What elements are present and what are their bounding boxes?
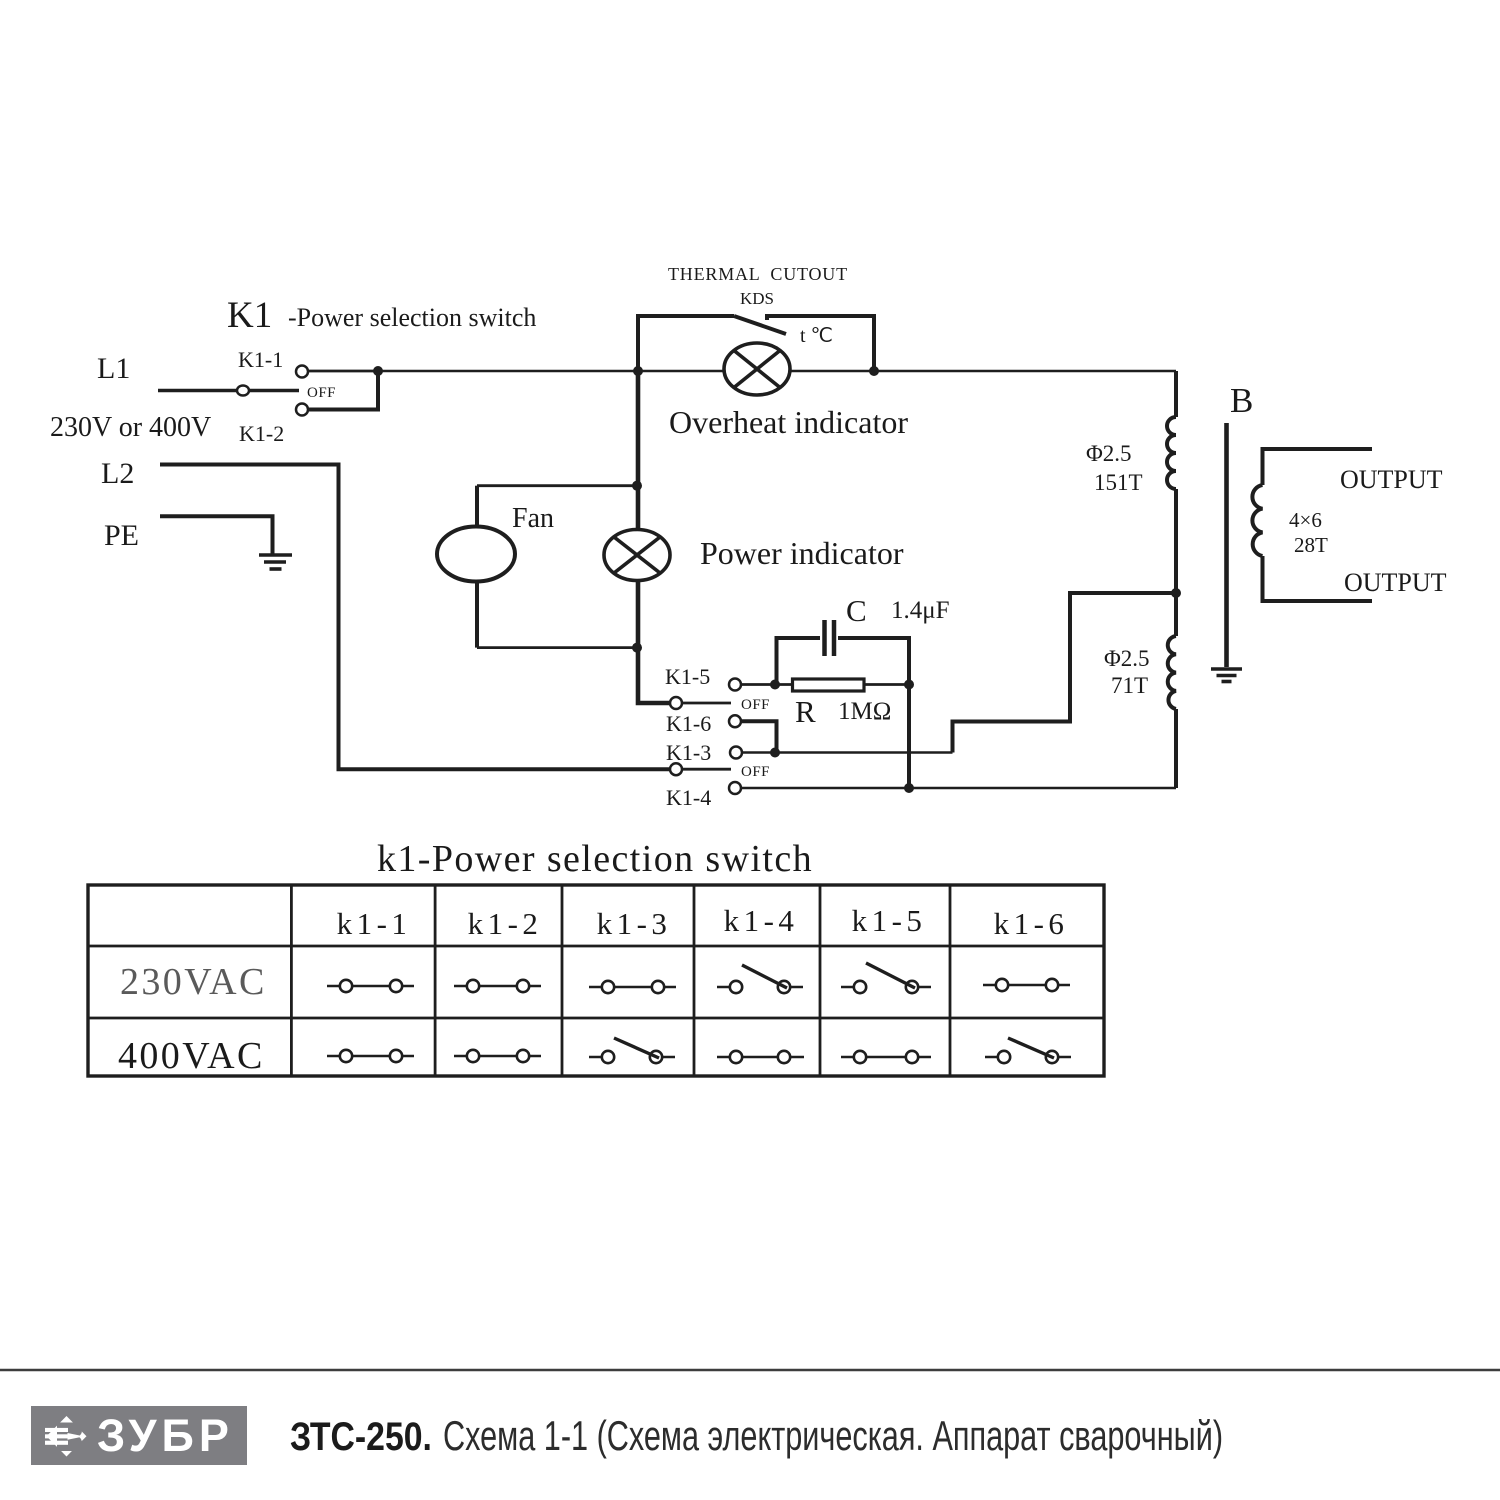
- svg-text:OFF: OFF: [307, 385, 336, 401]
- svg-text:230VAC: 230VAC: [120, 961, 267, 1003]
- svg-text:k1-4: k1-4: [724, 903, 799, 938]
- svg-text:Схема 1-1 (Схема электрическая: Схема 1-1 (Схема электрическая. Аппарат …: [443, 1412, 1223, 1459]
- svg-text:k1-2: k1-2: [468, 906, 543, 941]
- svg-text:t ℃: t ℃: [800, 325, 833, 347]
- svg-text:K1-6: K1-6: [666, 711, 711, 736]
- svg-text:K1-5: K1-5: [665, 664, 710, 689]
- svg-text:k1-5: k1-5: [852, 903, 927, 938]
- svg-text:Fan: Fan: [512, 503, 554, 534]
- svg-text:K1-4: K1-4: [666, 785, 711, 810]
- svg-text:K1: K1: [227, 295, 272, 336]
- svg-text:C: C: [846, 593, 867, 628]
- svg-text:400VAC: 400VAC: [118, 1035, 265, 1077]
- svg-text:k1-1: k1-1: [337, 906, 412, 941]
- svg-text:ЗУБР: ЗУБР: [97, 1410, 234, 1461]
- svg-text:Φ2.5: Φ2.5: [1104, 646, 1150, 671]
- svg-text:K1-2: K1-2: [239, 421, 284, 446]
- svg-text:ЗТС-250.: ЗТС-250.: [290, 1413, 432, 1458]
- svg-text:K1-1: K1-1: [238, 347, 283, 372]
- svg-text:OFF: OFF: [741, 697, 770, 713]
- svg-text:28T: 28T: [1294, 533, 1328, 557]
- svg-text:K1-3: K1-3: [666, 740, 711, 765]
- svg-text:k1-6: k1-6: [994, 906, 1069, 941]
- svg-text:OFF: OFF: [741, 764, 770, 780]
- svg-text:Overheat indicator: Overheat indicator: [669, 404, 908, 440]
- svg-text:71T: 71T: [1111, 673, 1148, 698]
- svg-text:Φ2.5: Φ2.5: [1086, 441, 1132, 466]
- svg-text:Power indicator: Power indicator: [700, 535, 904, 571]
- svg-text:k1-Power selection switch: k1-Power selection switch: [377, 838, 813, 880]
- svg-text:L2: L2: [101, 457, 134, 490]
- svg-text:OUTPUT: OUTPUT: [1344, 568, 1447, 597]
- svg-text:B: B: [1230, 381, 1253, 420]
- svg-text:R: R: [795, 694, 816, 729]
- svg-text:151T: 151T: [1094, 470, 1143, 495]
- svg-text:KDS: KDS: [740, 289, 774, 308]
- svg-text:OUTPUT: OUTPUT: [1340, 465, 1443, 494]
- svg-text:L1: L1: [97, 352, 130, 385]
- svg-text:THERMAL CUTOUT: THERMAL CUTOUT: [668, 264, 848, 284]
- svg-text:PE: PE: [104, 519, 139, 552]
- svg-text:1MΩ: 1MΩ: [838, 698, 891, 725]
- svg-text:k1-3: k1-3: [597, 906, 672, 941]
- svg-text:4×6: 4×6: [1289, 508, 1322, 532]
- svg-text:-Power selection switch: -Power selection switch: [288, 303, 536, 332]
- svg-text:230V or 400V: 230V or 400V: [50, 412, 211, 443]
- svg-text:1.4μF: 1.4μF: [891, 597, 950, 624]
